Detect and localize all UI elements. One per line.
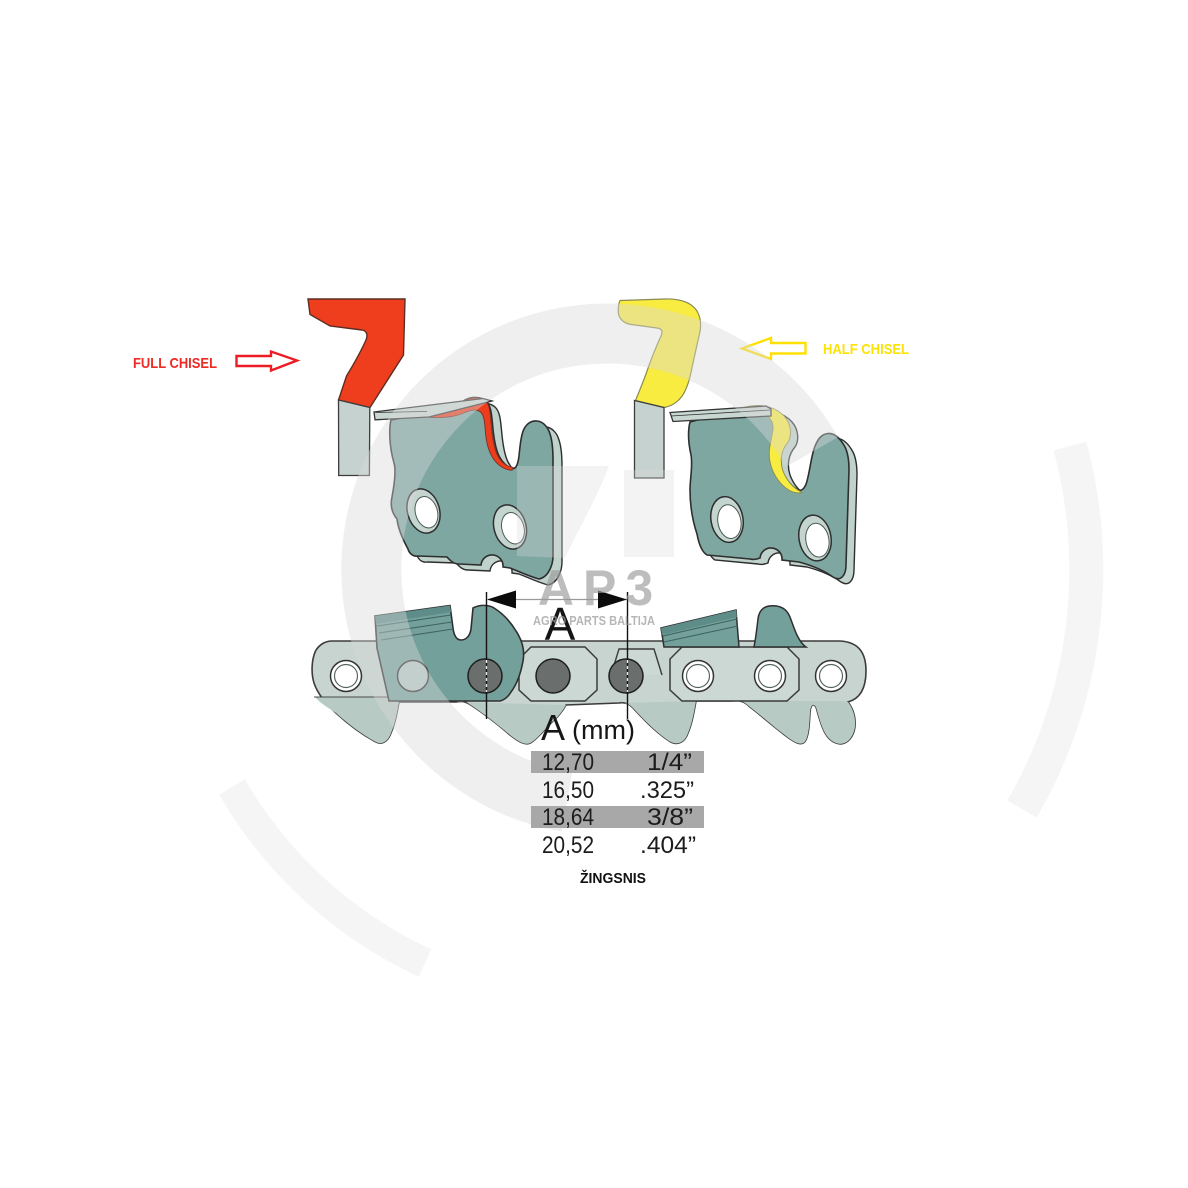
- svg-text:.404”: .404”: [640, 832, 696, 859]
- svg-text:FULL CHISEL: FULL CHISEL: [133, 355, 217, 372]
- svg-text:16,50: 16,50: [542, 777, 594, 804]
- svg-text:18,64: 18,64: [542, 804, 594, 831]
- svg-text:AP3: AP3: [538, 560, 662, 616]
- svg-text:AGRO PARTS BALTIJA: AGRO PARTS BALTIJA: [533, 613, 656, 628]
- svg-text:A: A: [541, 707, 565, 748]
- svg-text:HALF CHISEL: HALF CHISEL: [823, 341, 909, 358]
- svg-text:ŽINGSNIS: ŽINGSNIS: [580, 869, 646, 887]
- svg-text:3/8”: 3/8”: [647, 804, 693, 831]
- svg-text:20,52: 20,52: [542, 832, 594, 859]
- svg-text:.325”: .325”: [640, 777, 694, 804]
- svg-text:(mm): (mm): [572, 715, 635, 745]
- svg-text:1/4”: 1/4”: [647, 749, 692, 776]
- svg-text:12,70: 12,70: [542, 749, 594, 776]
